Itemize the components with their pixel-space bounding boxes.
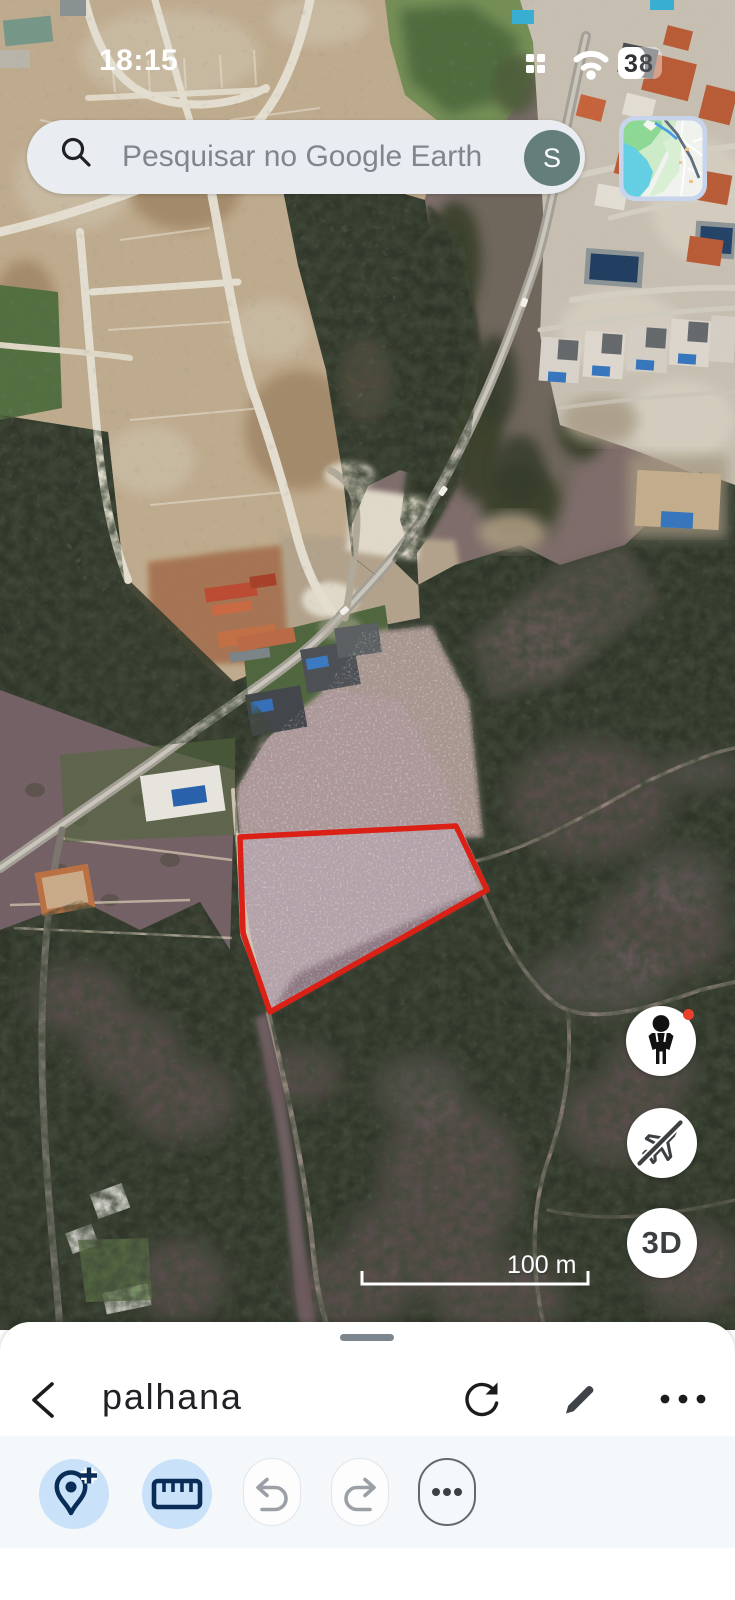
svg-text:8: 8 <box>639 50 653 78</box>
svg-text:100 m: 100 m <box>507 1251 576 1279</box>
svg-text:3: 3 <box>624 50 638 78</box>
